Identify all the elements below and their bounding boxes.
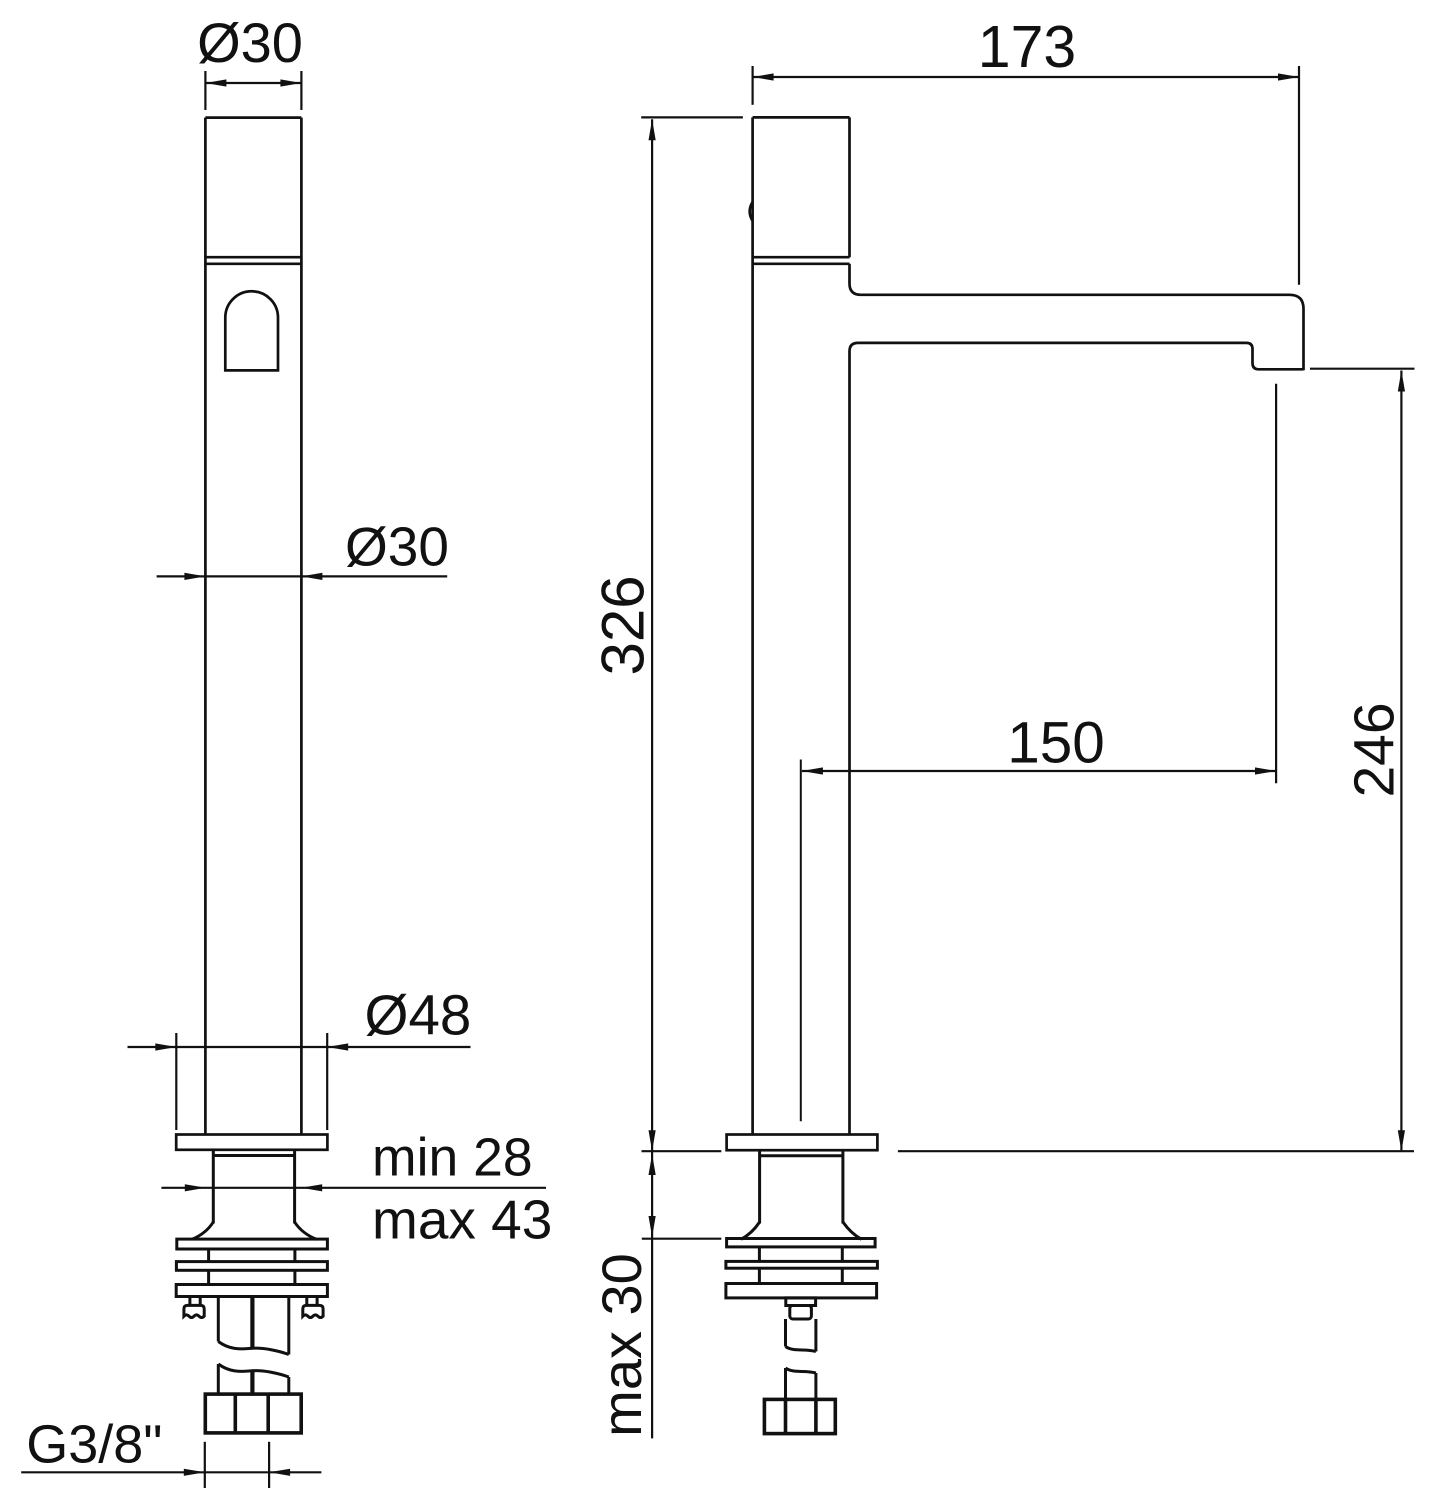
svg-text:Ø30: Ø30 [197, 11, 303, 74]
svg-text:Ø48: Ø48 [365, 984, 472, 1047]
svg-text:max 43: max 43 [372, 1189, 552, 1251]
svg-text:G3/8": G3/8" [26, 1415, 162, 1475]
svg-text:246: 246 [1343, 702, 1407, 797]
svg-text:173: 173 [978, 14, 1076, 80]
svg-text:150: 150 [1007, 711, 1105, 776]
svg-text:min 28: min 28 [372, 1128, 533, 1187]
svg-text:326: 326 [590, 575, 657, 675]
svg-text:Ø30: Ø30 [345, 516, 449, 578]
svg-text:max 30: max 30 [590, 1253, 653, 1437]
